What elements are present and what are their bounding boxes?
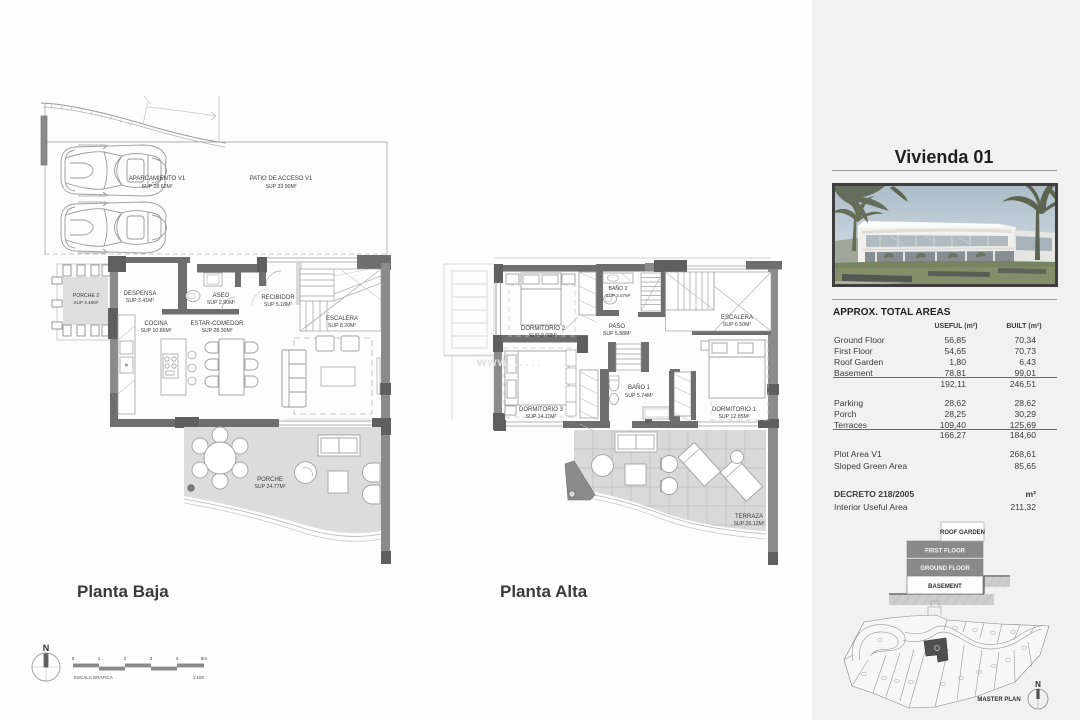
svg-text:184,60: 184,60 bbox=[1010, 430, 1037, 440]
svg-text:SUP 28.62M²: SUP 28.62M² bbox=[141, 184, 172, 190]
svg-text:SUP 2.90M²: SUP 2.90M² bbox=[207, 300, 235, 306]
svg-text:MASTER PLAN: MASTER PLAN bbox=[977, 697, 1020, 703]
svg-text:BUILT (m²): BUILT (m²) bbox=[1006, 323, 1041, 330]
svg-text:DESPENSA: DESPENSA bbox=[124, 291, 157, 297]
svg-text:PORCHE: PORCHE bbox=[257, 477, 283, 483]
svg-text:COCINA: COCINA bbox=[144, 321, 167, 327]
svg-text:ESCALERA: ESCALERA bbox=[721, 315, 753, 321]
svg-text:85,65: 85,65 bbox=[1014, 461, 1036, 471]
svg-text:125,69: 125,69 bbox=[1010, 420, 1037, 430]
svg-text:BASEMENT: BASEMENT bbox=[928, 584, 962, 590]
svg-text:Interior Useful Area: Interior Useful Area bbox=[834, 502, 908, 512]
svg-text:192,11: 192,11 bbox=[940, 379, 966, 389]
svg-text:Roof Garden: Roof Garden bbox=[834, 357, 883, 367]
svg-text:166,27: 166,27 bbox=[940, 430, 967, 440]
svg-text:SUP 10.86M²: SUP 10.86M² bbox=[140, 328, 171, 334]
svg-text:Planta Alta: Planta Alta bbox=[500, 582, 588, 601]
svg-text:m²: m² bbox=[1025, 489, 1036, 499]
svg-text:28,25: 28,25 bbox=[944, 409, 966, 419]
svg-text:70,73: 70,73 bbox=[1014, 346, 1036, 356]
svg-text:N: N bbox=[1035, 680, 1041, 689]
svg-text:SUP 3.41M²: SUP 3.41M² bbox=[126, 298, 154, 304]
svg-text:211,32: 211,32 bbox=[1010, 502, 1036, 512]
svg-text:Planta Baja: Planta Baja bbox=[77, 582, 169, 601]
svg-text:ASEO: ASEO bbox=[213, 293, 230, 299]
svg-text:Vivienda 01: Vivienda 01 bbox=[895, 147, 994, 167]
svg-text:PASO: PASO bbox=[609, 324, 626, 330]
svg-text:SUP 33.90M²: SUP 33.90M² bbox=[265, 184, 296, 190]
svg-text:3: 3 bbox=[150, 656, 153, 661]
svg-text:BAÑO 1: BAÑO 1 bbox=[628, 384, 651, 391]
svg-text:Porch: Porch bbox=[834, 409, 857, 419]
svg-text:DORMITORIO 1: DORMITORIO 1 bbox=[712, 407, 757, 413]
svg-text:SUP 3.57M²: SUP 3.57M² bbox=[606, 293, 631, 298]
svg-text:DORMITORIO 2: DORMITORIO 2 bbox=[521, 326, 566, 332]
svg-text:SUP 3.48M²: SUP 3.48M² bbox=[74, 300, 99, 305]
svg-text:5m: 5m bbox=[201, 656, 208, 661]
svg-text:Ground Floor: Ground Floor bbox=[834, 335, 885, 345]
svg-text:N: N bbox=[43, 643, 50, 653]
svg-text:SUP 5.74M²: SUP 5.74M² bbox=[625, 393, 653, 399]
svg-text:FIRST FLOOR: FIRST FLOOR bbox=[925, 549, 966, 555]
svg-text:1: 1 bbox=[98, 656, 101, 661]
svg-text:268,61: 268,61 bbox=[1010, 449, 1037, 459]
svg-text:RECIBIDOR: RECIBIDOR bbox=[261, 295, 295, 301]
svg-text:SUP 6.50M²: SUP 6.50M² bbox=[723, 322, 751, 328]
svg-text:1,80: 1,80 bbox=[949, 357, 966, 367]
svg-text:99,01: 99,01 bbox=[1014, 368, 1036, 378]
svg-text:SUP 24.77M²: SUP 24.77M² bbox=[254, 484, 285, 490]
svg-text:28,62: 28,62 bbox=[944, 398, 966, 408]
svg-text:SUP 14.11M²: SUP 14.11M² bbox=[526, 414, 557, 420]
svg-text:Sloped Green Area: Sloped Green Area bbox=[834, 461, 907, 471]
svg-text:PORCHE 2: PORCHE 2 bbox=[73, 293, 100, 299]
svg-text:BAÑO 2: BAÑO 2 bbox=[608, 285, 627, 292]
svg-text:246,51: 246,51 bbox=[1010, 379, 1037, 389]
svg-text:54,65: 54,65 bbox=[944, 346, 966, 356]
svg-text:APPROX. TOTAL AREAS: APPROX. TOTAL AREAS bbox=[833, 307, 951, 318]
svg-text:ESTAR-COMEDOR: ESTAR-COMEDOR bbox=[191, 321, 245, 327]
svg-text:ESCALERA: ESCALERA bbox=[326, 316, 358, 322]
svg-text:Parking: Parking bbox=[834, 398, 863, 408]
svg-text:Plot Area V1: Plot Area V1 bbox=[834, 449, 882, 459]
svg-text:DECRETO 218/2005: DECRETO 218/2005 bbox=[834, 489, 914, 499]
svg-text:1:100: 1:100 bbox=[193, 675, 205, 680]
svg-text:APARCAMIENTO V1: APARCAMIENTO V1 bbox=[129, 176, 186, 182]
svg-text:109,40: 109,40 bbox=[940, 420, 967, 430]
svg-text:0: 0 bbox=[72, 656, 75, 661]
svg-text:70,34: 70,34 bbox=[1014, 335, 1036, 345]
svg-text:4: 4 bbox=[176, 656, 179, 661]
svg-text:TERRAZA: TERRAZA bbox=[735, 514, 763, 520]
svg-text:SUP 12.85M²: SUP 12.85M² bbox=[718, 414, 749, 420]
svg-text:USEFUL (m²): USEFUL (m²) bbox=[934, 323, 977, 330]
svg-text:DORMITORIO 3: DORMITORIO 3 bbox=[519, 407, 564, 413]
svg-text:6,43: 6,43 bbox=[1019, 357, 1036, 367]
svg-text:ESCALA GRÁFICA: ESCALA GRÁFICA bbox=[74, 674, 113, 680]
svg-text:PATIO DE ACCESO V1: PATIO DE ACCESO V1 bbox=[250, 176, 313, 182]
svg-text:www......: www...... bbox=[476, 355, 543, 369]
svg-text:56,85: 56,85 bbox=[944, 335, 966, 345]
svg-text:78,81: 78,81 bbox=[944, 368, 966, 378]
svg-text:GROUND FLOOR: GROUND FLOOR bbox=[920, 566, 970, 572]
svg-text:First Floor: First Floor bbox=[834, 346, 873, 356]
svg-text:ROOF GARDEN: ROOF GARDEN bbox=[940, 530, 985, 536]
svg-text:30,29: 30,29 bbox=[1014, 409, 1036, 419]
svg-text:SUP 5.88M²: SUP 5.88M² bbox=[603, 331, 631, 337]
svg-text:2: 2 bbox=[124, 656, 127, 661]
svg-text:SUP 8.20M²: SUP 8.20M² bbox=[328, 323, 356, 329]
svg-text:SUP 9.00M²: SUP 9.00M² bbox=[529, 333, 557, 339]
svg-text:28,62: 28,62 bbox=[1014, 398, 1036, 408]
svg-text:SUP 26.12M²: SUP 26.12M² bbox=[733, 521, 764, 527]
svg-text:Terraces: Terraces bbox=[834, 420, 867, 430]
svg-text:Basement: Basement bbox=[834, 368, 873, 378]
svg-text:SUP 5.18M²: SUP 5.18M² bbox=[264, 302, 292, 308]
svg-text:SUP 28.30M²: SUP 28.30M² bbox=[201, 328, 232, 334]
